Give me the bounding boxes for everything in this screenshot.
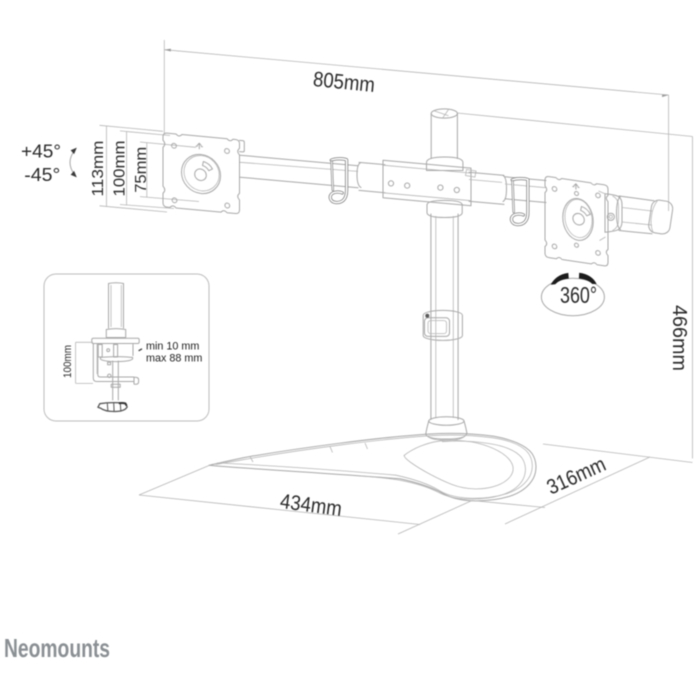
svg-text:100mm: 100mm bbox=[62, 345, 74, 378]
svg-text:100mm: 100mm bbox=[111, 140, 128, 196]
svg-text:75mm: 75mm bbox=[133, 147, 150, 193]
svg-text:-45°: -45° bbox=[24, 165, 60, 185]
svg-text:360°: 360° bbox=[560, 282, 597, 308]
svg-text:113mm: 113mm bbox=[90, 140, 107, 196]
svg-text:min 10 mm: min 10 mm bbox=[146, 340, 199, 352]
svg-text:max 88 mm: max 88 mm bbox=[146, 352, 202, 364]
svg-text:Neomounts: Neomounts bbox=[4, 633, 110, 663]
svg-text:+45°: +45° bbox=[21, 142, 61, 162]
svg-text:466mm: 466mm bbox=[668, 305, 690, 371]
